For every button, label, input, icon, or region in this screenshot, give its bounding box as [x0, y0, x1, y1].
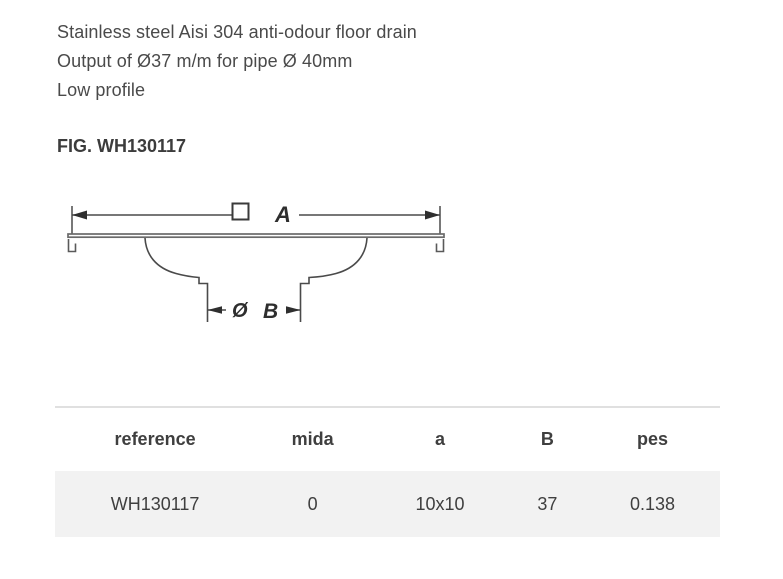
funnel-left-profile: [145, 238, 208, 322]
cell-pes: 0.138: [585, 471, 720, 537]
specification-table: reference mida a B pes WH130117 0 10x10 …: [55, 406, 720, 537]
drain-top-plate: [68, 234, 444, 237]
arrow-right-icon: [425, 211, 440, 220]
square-grate-symbol-icon: [233, 204, 249, 220]
arrow-outlet-left-icon: [208, 306, 223, 314]
table-row: WH130117 0 10x10 37 0.138: [55, 471, 720, 537]
dimension-label-b: B: [263, 300, 278, 323]
cell-mida: 0: [255, 471, 370, 537]
cell-a: 10x10: [370, 471, 510, 537]
product-description: Stainless steel Aisi 304 anti-odour floo…: [57, 18, 783, 105]
figure-title: FIG. WH130117: [57, 135, 783, 157]
header-pes: pes: [585, 407, 720, 471]
diameter-symbol-label: Ø: [232, 300, 249, 322]
arrow-left-icon: [72, 211, 87, 220]
header-b: B: [510, 407, 585, 471]
plate-left-hook: [69, 239, 76, 252]
plate-right-hook: [437, 239, 444, 252]
cell-reference: WH130117: [55, 471, 255, 537]
header-a: a: [370, 407, 510, 471]
description-line-1: Stainless steel Aisi 304 anti-odour floo…: [57, 18, 783, 47]
funnel-right-profile: [301, 238, 368, 322]
arrow-outlet-right-icon: [286, 306, 301, 314]
floor-drain-diagram: A Ø B: [60, 195, 450, 330]
dimension-label-a: A: [274, 202, 291, 227]
description-line-3: Low profile: [57, 76, 783, 105]
page-content: Stainless steel Aisi 304 anti-odour floo…: [0, 0, 783, 537]
table-header-row: reference mida a B pes: [55, 407, 720, 471]
description-line-2: Output of Ø37 m/m for pipe Ø 40mm: [57, 47, 783, 76]
header-reference: reference: [55, 407, 255, 471]
cell-b: 37: [510, 471, 585, 537]
header-mida: mida: [255, 407, 370, 471]
